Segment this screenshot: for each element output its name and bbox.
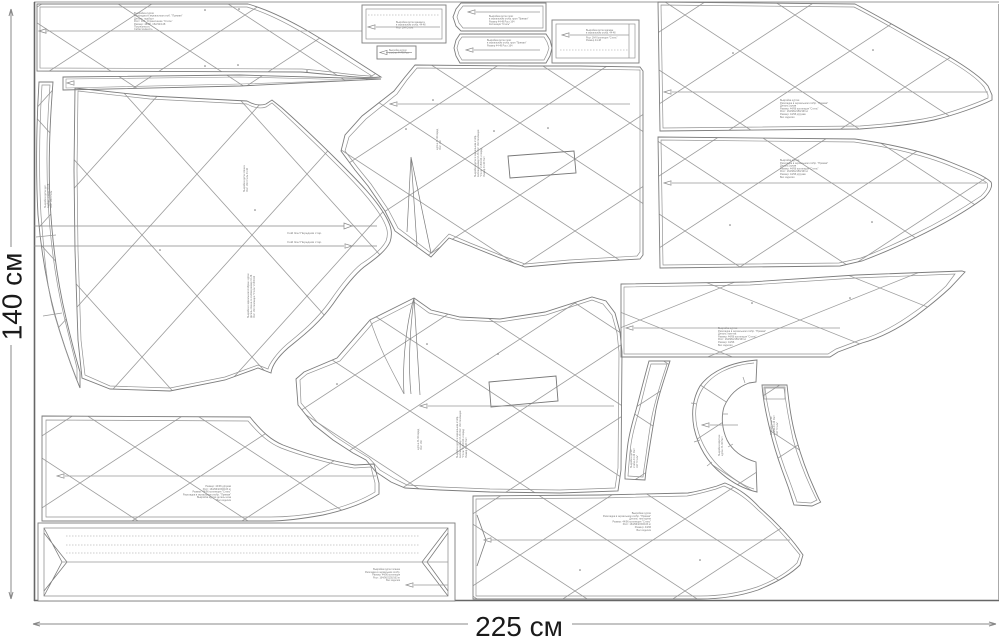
svg-text:Себестоимость: Себестоимость xyxy=(134,27,153,31)
svg-text:Вес изделия: Вес изделия xyxy=(780,116,795,119)
svg-text:Коллекция "Стиль": Коллекция "Стиль" xyxy=(489,23,510,26)
svg-text:Рост 164 Стиль: Рост 164 Стиль xyxy=(396,26,414,29)
svg-text:Выкройка куртки: Выкройка куртки xyxy=(389,49,407,52)
svg-text:Fold line/ Передняя стор.: Fold line/ Передняя стор. xyxy=(287,240,322,244)
svg-text:Размер 44-48 Рост 164: Размер 44-48 Рост 164 xyxy=(487,44,513,47)
svg-text:Рост 164 Стиль 44-48: Рост 164 Стиль 44-48 xyxy=(246,167,249,192)
svg-text:Рост 164: Рост 164 xyxy=(420,440,423,450)
svg-text:Вес изделия: Вес изделия xyxy=(217,499,232,502)
svg-text:164 "Стиль": 164 "Стиль" xyxy=(776,422,779,435)
svg-text:140 см: 140 см xyxy=(0,253,28,341)
svg-text:Вес изделия: Вес изделия xyxy=(637,529,652,532)
svg-text:в зеркальном отобр. 44-48: в зеркальном отобр. 44-48 xyxy=(586,32,616,35)
svg-text:Вес изделия: Вес изделия xyxy=(718,344,733,347)
svg-text:Размер 44-48: Размер 44-48 xyxy=(586,39,602,42)
svg-text:Рост 164 Коллекция "Стиль" 215: Рост 164 Коллекция "Стиль" 2150/163 xyxy=(253,275,256,318)
svg-text:Рост 164 Стиль: Рост 164 Стиль xyxy=(50,190,53,208)
svg-text:Рост 164: Рост 164 xyxy=(439,140,442,150)
svg-text:хлястик 44-48 Рост: хлястик 44-48 Рост xyxy=(389,53,410,55)
svg-text:225 см: 225 см xyxy=(475,611,563,641)
svg-text:Вес изделия: Вес изделия xyxy=(386,579,401,582)
svg-text:Fold line/ Передняя стор.: Fold line/ Передняя стор. xyxy=(287,231,322,235)
svg-text:Вес изделия: Вес изделия xyxy=(780,176,795,179)
svg-text:куртки 44-48 Рост: куртки 44-48 Рост xyxy=(721,436,724,456)
svg-text:Размер 44-48 Рост: Размер 44-48 Рост xyxy=(465,436,468,458)
svg-text:Размер 44-48 Рост: Размер 44-48 Рост xyxy=(483,155,486,177)
svg-text:164 "Стиль": 164 "Стиль" xyxy=(636,455,639,468)
